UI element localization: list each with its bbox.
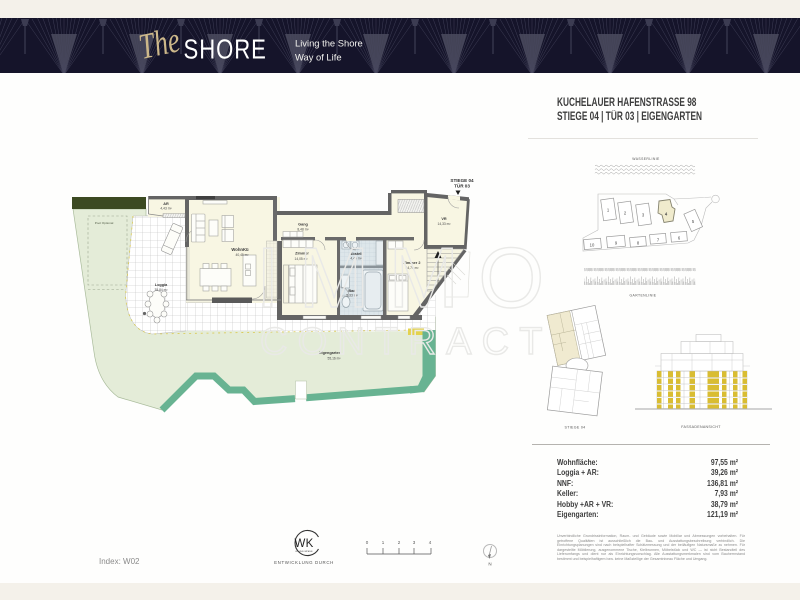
svg-text:WohnKü: WohnKü [231,247,249,252]
svg-text:TÜR 03: TÜR 03 [454,183,470,189]
svg-text:4,43 m²: 4,43 m² [160,207,172,211]
svg-text:4: 4 [429,540,432,545]
svg-text:WASSERLINIE: WASSERLINIE [632,157,660,161]
svg-text:10: 10 [590,243,595,248]
svg-text:35,84 m²: 35,84 m² [154,288,168,292]
svg-text:WOHNKOMPANIE: WOHNKOMPANIE [295,550,313,553]
svg-text:0: 0 [366,540,369,545]
svg-text:Pool Optional: Pool Optional [95,221,114,225]
svg-text:2: 2 [398,540,401,545]
svg-text:IMMO: IMMO [256,231,563,326]
svg-text:FASSADENANSICHT: FASSADENANSICHT [681,425,721,429]
svg-text:Gang: Gang [298,223,308,227]
svg-text:14,33 m²: 14,33 m² [437,222,451,226]
svg-text:Loggia: Loggia [155,283,168,287]
svg-text:STIEGE 04: STIEGE 04 [450,178,474,183]
svg-text:3: 3 [413,540,416,545]
svg-text:WK: WK [295,538,314,550]
svg-text:1: 1 [382,540,385,545]
svg-text:VR: VR [441,217,447,221]
svg-text:AR: AR [163,202,169,206]
svg-text:GARTENLINIE: GARTENLINIE [630,294,657,298]
svg-text:N: N [488,562,491,567]
svg-text:CONTRACT: CONTRACT [260,321,553,363]
svg-text:STIEGE 04: STIEGE 04 [565,426,586,430]
svg-text:40,45 m²: 40,45 m² [235,253,249,257]
